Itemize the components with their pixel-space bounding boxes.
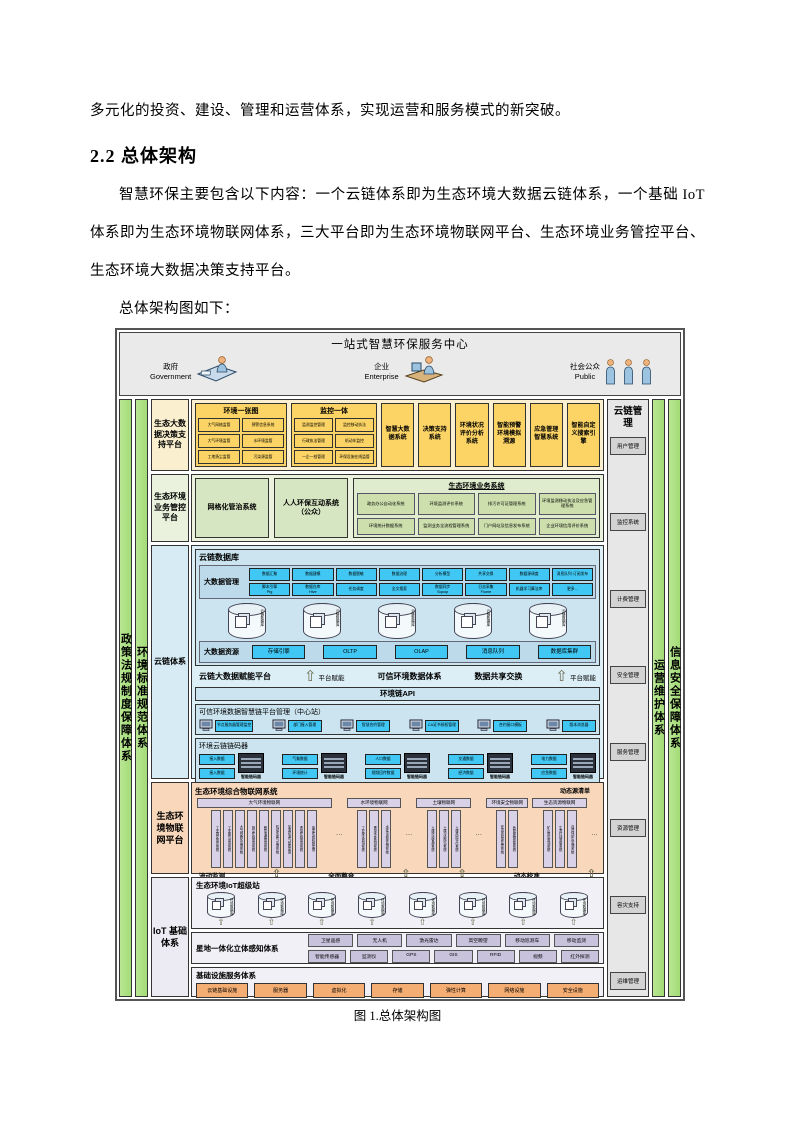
business-system-chip: 排污许可证管理系统 [478, 493, 536, 515]
bigdata-tool-chip: 数据脱敏 [336, 568, 377, 581]
sensing-chip: 移动监测 [554, 934, 599, 947]
terminal-label: 节点服务器管理监控 [215, 720, 253, 732]
decision-system-box: 智能预警环境模拟溯源 [493, 403, 526, 467]
sensing-chip: 激光雷达 [406, 934, 451, 947]
air-iot-group: 大气环境物联网 工业园区监控系统工业废气监测系统大气网格化监测系统扬尘在线监测系… [197, 798, 332, 868]
infrastructure-chip: 云链基础设施 [196, 983, 248, 998]
business-system-chip: 环境监测评价系统 [418, 493, 476, 515]
public-interaction-box: 人人环保互动系统（公众） [274, 478, 348, 538]
iot-subsystem-chip: 工业园区监控系统 [211, 810, 221, 868]
infrastructure-chip: 弹性计算 [430, 983, 482, 998]
actor-government: 政府Government [150, 354, 238, 389]
iot-subsystem-chip: 矿山恢复监测系统 [543, 810, 553, 868]
bigdata-tool-chip: 数据汇聚 [249, 568, 290, 581]
database-cylinder: 云链数据库 [529, 603, 567, 639]
env-one-map-group: 环境一张图 大气网格监管预警信息系统大气环境监管水环境监管工地扬尘监管污染源监管 [195, 403, 287, 467]
bigdata-tool-chip: 数据仓库 Hive [292, 583, 333, 596]
chaincode-group: 交通数据经济数据 智能链码器 [448, 753, 513, 780]
iot-subsystem-chip: 水环境质量监测系统 [381, 810, 391, 868]
bigdata-tool-chip: 消息队列·订阅发布 [552, 568, 593, 581]
map-subsystem-chip: 大气网格监管 [198, 418, 240, 432]
database-cylinder: 环境数据库 [409, 892, 437, 918]
computer-icon [409, 719, 423, 732]
iot-subsystem-chip: 生态红线监管系统 [555, 810, 565, 868]
cloud-mgmt-item: 运维管理 [610, 972, 646, 990]
info-security-bar: 信息安全保障体系 [668, 399, 681, 997]
database-cylinder: 云链数据库 [228, 603, 266, 639]
map-subsystem-chip: 污染源监管 [242, 450, 284, 464]
database-cylinder: 环境数据库 [560, 892, 588, 918]
decision-system-box: 智慧大数据系统 [381, 403, 414, 467]
data-source-chip: 环境统计 [282, 768, 318, 779]
cloud-mgmt-item: 资源管理 [610, 819, 646, 837]
chaincode-group: 电力数据应急数据 智能链码器 [531, 753, 596, 780]
monitor-subsystem-chip: 行政执法管理 [294, 434, 333, 448]
ellipsis: … [405, 830, 412, 837]
chaincode-box: 环境云链链码器 接入数据接入数据 智能链码器 气象数据环境统计 智能链码器 [195, 738, 600, 783]
decision-system-box: 智能自定义搜索引擎 [567, 403, 600, 467]
iot-subsystem-chip: 自然保护区监测系统 [567, 810, 577, 868]
terminal-label: 部门接入管理 [288, 720, 322, 732]
cloud-mgmt-item: 安全管理 [610, 666, 646, 684]
bigdata-tool-chip: 全文搜索 [379, 583, 420, 596]
operation-maintenance-bar: 运营维护体系 [652, 399, 665, 997]
business-system-chip: 企业环境信用评价系统 [539, 518, 597, 535]
database-cylinder: 环境数据库 [358, 892, 386, 918]
architecture-diagram: 一站式智慧环保服务中心 政府Government 企业Enterprise 社会… [115, 328, 685, 1001]
actor-public: 社会公众Public [570, 359, 652, 385]
sensing-chip: RFID [477, 950, 515, 963]
dynamic-source-note: 动态源清单 [560, 786, 600, 797]
monitor-subsystem-chip: 监测监控管理 [294, 418, 333, 432]
bigdata-tool-chip: 更多... [552, 583, 593, 596]
map-subsystem-chip: 工地扬尘监管 [198, 450, 240, 464]
data-source-chip: 接入数据 [199, 768, 235, 779]
up-arrow-icon: ⇧ [304, 669, 317, 684]
uplink-arrows: ⇧⇧⇧⇧⇧⇧⇧⇧ [196, 918, 599, 927]
iot-subsystem-chip: 工业废气监测系统 [223, 810, 233, 868]
eco-resource-iot-group: 生态资源物联网 矿山恢复监测系统生态红线监管系统自然保护区监测系统 [532, 798, 587, 868]
data-source-chip: 接入数据 [199, 754, 235, 765]
resource-chip: OLAP [395, 645, 448, 659]
trusted-chain-mgmt-box: 可信环境数据智慧链平台管理（中心站） 节点服务器管理监控 部门接入管理 智慧合约 [195, 704, 600, 735]
computer-icon [477, 719, 491, 732]
ellipsis: … [591, 830, 598, 837]
terminal-label: CA证书授权管理 [425, 720, 459, 732]
bigdata-tool-chip: 分析模型 [422, 568, 463, 581]
iot-subsystem-chip: 危险废物监管系统 [508, 810, 518, 868]
decision-system-box: 应急管理智慧系统 [530, 403, 563, 467]
bigdata-tool-chip: 日志采集 Flume [465, 583, 506, 596]
terminal-label: 智慧合约管理 [356, 720, 390, 732]
data-source-chip: 视频回传数据 [365, 768, 401, 779]
iot-base-label: IoT 基础体系 [151, 877, 189, 997]
database-cylinder: 环境数据库 [308, 892, 336, 918]
env-chain-api-bar: 环境链API [195, 687, 600, 701]
business-system-chip: 门户网站及信息发布系统 [478, 518, 536, 535]
safety-iot-group: 环境安全物联网 环境风险源监控系统危险废物监管系统 [486, 798, 528, 868]
figure-caption: 图 1.总体架构图 [90, 1005, 705, 1024]
chaincode-group: 气象数据环境统计 智能链码器 [282, 753, 347, 780]
terminal-label: 合约接口模板 [493, 720, 527, 732]
terminal-label: 版本浏览器 [562, 720, 596, 732]
bigdata-mgmt-label: 大数据管理 [202, 577, 246, 587]
terminal-item: 节点服务器管理监控 [199, 719, 253, 732]
infrastructure-chip: 虚拟化 [313, 983, 365, 998]
cloud-mgmt-item: 容灾支持 [610, 896, 646, 914]
server-icon [487, 753, 513, 773]
cloud-mgmt-item: 计费管理 [610, 590, 646, 608]
paragraph-body: 智慧环保主要包含以下内容：一个云链体系即为生态环境大数据云链体系，一个基础 Io… [90, 176, 705, 290]
grid-governance-box: 网格化管治系统 [195, 478, 269, 538]
service-center-band: 一站式智慧环保服务中心 政府Government 企业Enterprise 社会… [119, 332, 681, 396]
decision-platform-label: 生态大数据决策支持平台 [151, 399, 189, 471]
computer-icon [340, 719, 354, 732]
iot-system-title: 生态环境综合物联网系统 [195, 786, 278, 797]
cloud-mgmt-item: 服务管理 [610, 743, 646, 761]
business-system-chip: 环境监测移动执法及应急管理系统 [539, 493, 597, 515]
chaincode-group: 接入数据接入数据 智能链码器 [199, 753, 264, 780]
database-cylinder: 环境数据库 [509, 892, 537, 918]
paragraph-lead-in: 总体架构图如下： [90, 290, 705, 328]
infrastructure-chip: 安全设施 [547, 983, 599, 998]
diagram-title: 一站式智慧环保服务中心 [120, 333, 680, 352]
bigdata-tool-chip: 任务调度 [336, 583, 377, 596]
iot-subsystem-chip: 加油站油气回收监测 [283, 810, 293, 868]
iot-subsystem-chip: 机动车尾气监测系统 [271, 810, 281, 868]
bigdata-tool-chip: 机器学习算法库 [509, 583, 550, 596]
database-cylinder: 云链数据库 [303, 603, 341, 639]
soil-iot-group: 土壤物联网 土壤环境管理系统土壤污染防治系统土壤风险评估系统 [416, 798, 471, 868]
bigdata-tool-chip: 脚本引擎 Pig [249, 583, 290, 596]
bigdata-tool-chip: 数据同步 Sqoop [422, 583, 463, 596]
decision-system-box: 环境状况评价分析系统 [455, 403, 488, 467]
server-icon [404, 753, 430, 773]
iot-platform-label: 生态环境物联网平台 [151, 782, 189, 874]
resource-chip: 存储引擎 [252, 645, 305, 659]
terminal-item: 部门接入管理 [272, 719, 322, 732]
iot-subsystem-chip: 土壤风险评估系统 [451, 810, 461, 868]
monitor-subsystem-chip: 监控移动执法 [335, 418, 374, 432]
monitor-subsystem-chip: 环保设施在线监管 [335, 450, 374, 464]
document-page: 多元化的投资、建设、管理和运营体系，实现运营和服务模式的新突破。 2.2 总体架… [0, 0, 793, 1122]
infrastructure-chip: 服务器 [254, 983, 306, 998]
resource-chip: OLTP [323, 645, 376, 659]
terminal-item: CA证书授权管理 [409, 719, 459, 732]
iot-subsystem-chip: 扬尘在线监测系统 [247, 810, 257, 868]
sensing-chip: GPS [392, 950, 430, 963]
sensing-chip: 监测仪 [350, 950, 388, 963]
infrastructure-chip: 网络设施 [488, 983, 540, 998]
platform-empower-row: 云链大数据赋能平台 ⇧平台赋能 可信环境数据体系 数据共享交换 ⇧平台赋能 [195, 669, 600, 684]
cloudchain-label: 云链体系 [151, 545, 189, 779]
iot-subsystem-chip: 工业废水监测系统 [357, 810, 367, 868]
database-cylinders: 云链数据库 云链数据库 云链数据库 云链数据库 云链数据库 [199, 599, 596, 641]
database-cylinder: 云链数据库 [454, 603, 492, 639]
bigdata-tool-chip: 数据治理 [379, 568, 420, 581]
monitor-subsystem-chip: 一企一档管理 [294, 450, 333, 464]
bigdata-tool-chip: 数据建模 [292, 568, 333, 581]
eco-business-system-group: 生态环境业务系统 政务办公自动化系统环境监测评价系统排污许可证管理系统环境监测移… [353, 478, 600, 538]
ellipsis: … [336, 830, 343, 837]
map-subsystem-chip: 预警信息系统 [242, 418, 284, 432]
sensing-chip: GIS [434, 950, 472, 963]
cloud-mgmt-column: 云链管理 用户管理监控系统计费管理安全管理服务管理资源管理容灾支持运维管理 [607, 399, 649, 997]
database-cylinder: 环境数据库 [258, 892, 286, 918]
data-source-chip: 气象数据 [282, 754, 318, 765]
actor-enterprise: 企业Enterprise [365, 354, 444, 389]
data-source-chip: 交通数据 [448, 754, 484, 765]
paragraph-top: 多元化的投资、建设、管理和运营体系，实现运营和服务模式的新突破。 [90, 100, 705, 122]
decision-system-box: 决策支持系统 [418, 403, 451, 467]
map-subsystem-chip: 水环境监管 [242, 434, 284, 448]
monitor-subsystem-chip: 机动车监控 [335, 434, 374, 448]
cloud-mgmt-item: 监控系统 [610, 513, 646, 531]
business-platform-label: 生态环境业务管控平台 [151, 474, 189, 542]
bigdata-resource-label: 大数据资源 [204, 647, 246, 657]
section-heading: 2.2 总体架构 [90, 142, 705, 168]
database-cylinder: 环境数据库 [459, 892, 487, 918]
resource-chip: 数据库集群 [538, 645, 591, 659]
cloudchain-database-box: 云链数据库 大数据管理 数据汇聚数据建模数据脱敏数据治理分析模型共享交换数据源调… [195, 549, 600, 666]
terminal-item: 智慧合约管理 [340, 719, 390, 732]
enterprise-computer-icon [404, 354, 444, 389]
server-icon [321, 753, 347, 773]
infrastructure-box: 基础设施服务体系 云链基础设施服务器虚拟化存储弹性计算网络设施安全设施 [191, 967, 604, 997]
iot-subsystem-chip: 大气网格化监测系统 [235, 810, 245, 868]
sensing-chip: 红外探测 [561, 950, 599, 963]
resource-chip: 消息队列 [466, 645, 519, 659]
computer-icon [199, 719, 213, 732]
cloud-mgmt-item: 用户管理 [610, 437, 646, 455]
iot-superstation-box: 生态环境IoT超级站 环境数据库 环境数据库 环境数据库 环境数据库 环境数据库… [191, 877, 604, 929]
sensing-chip: 高空瞭望 [456, 934, 501, 947]
monitor-integrated-group: 监控一体 监测监控管理监控移动执法行政执法管理机动车监控一企一档管理环保设施在线… [291, 403, 377, 467]
computer-icon [546, 719, 560, 732]
terminal-item: 版本浏览器 [546, 719, 596, 732]
iot-subsystem-chip: 餐饮油烟监测系统 [259, 810, 269, 868]
chaincode-group: 人口数据视频回传数据 智能链码器 [365, 753, 430, 780]
bigdata-tool-chip: 数据源调度 [509, 568, 550, 581]
data-source-chip: 电力数据 [531, 754, 567, 765]
sensing-system-box: 星地一体化立体感知体系 卫星遥感无人机激光雷达高空瞭望移动巡测车移动监测 智能传… [191, 932, 604, 964]
business-system-chip: 政务办公自动化系统 [357, 493, 415, 515]
ellipsis: … [475, 830, 482, 837]
sensing-chip: 无人机 [357, 934, 402, 947]
data-source-chip: 应急数据 [531, 768, 567, 779]
sensing-chip: 卫星遥感 [308, 934, 353, 947]
iot-subsystem-chip: 挥发性有机物监测 [307, 810, 317, 868]
public-people-icons [605, 359, 652, 385]
server-icon [570, 753, 596, 773]
data-source-chip: 人口数据 [365, 754, 401, 765]
environment-standard-bar: 环境标准规范体系 [135, 399, 148, 997]
government-desk-icon [196, 354, 238, 389]
terminal-item: 合约接口模板 [477, 719, 527, 732]
iot-subsystem-chip: 恶臭在线监测系统 [295, 810, 305, 868]
bigdata-tool-chip: 共享交换 [465, 568, 506, 581]
iot-subsystem-chip: 土壤污染防治系统 [439, 810, 449, 868]
infrastructure-chip: 存储 [371, 983, 423, 998]
business-system-chip: 监测业务全流程管理系统 [418, 518, 476, 535]
sensing-chip: 移动巡测车 [505, 934, 550, 947]
water-iot-group: 水环境物联网 工业废水监测系统黑臭水体监测系统水环境质量监测系统 [347, 798, 402, 868]
database-cylinder: 环境数据库 [207, 892, 235, 918]
map-subsystem-chip: 大气环境监管 [198, 434, 240, 448]
database-cylinder: 云链数据库 [378, 603, 416, 639]
business-system-chip: 环境统计数据系统 [357, 518, 415, 535]
iot-subsystem-chip: 土壤环境管理系统 [427, 810, 437, 868]
policy-regulation-bar: 政策法规制度保障体系 [119, 399, 132, 997]
data-source-chip: 经济数据 [448, 768, 484, 779]
server-icon [238, 753, 264, 773]
sensing-chip: 智能传感器 [308, 950, 346, 963]
up-arrow-icon: ⇧ [555, 669, 568, 684]
iot-subsystem-chip: 黑臭水体监测系统 [369, 810, 379, 868]
computer-icon [272, 719, 286, 732]
sensing-chip: 视频 [519, 950, 557, 963]
iot-subsystem-chip: 环境风险源监控系统 [496, 810, 506, 868]
